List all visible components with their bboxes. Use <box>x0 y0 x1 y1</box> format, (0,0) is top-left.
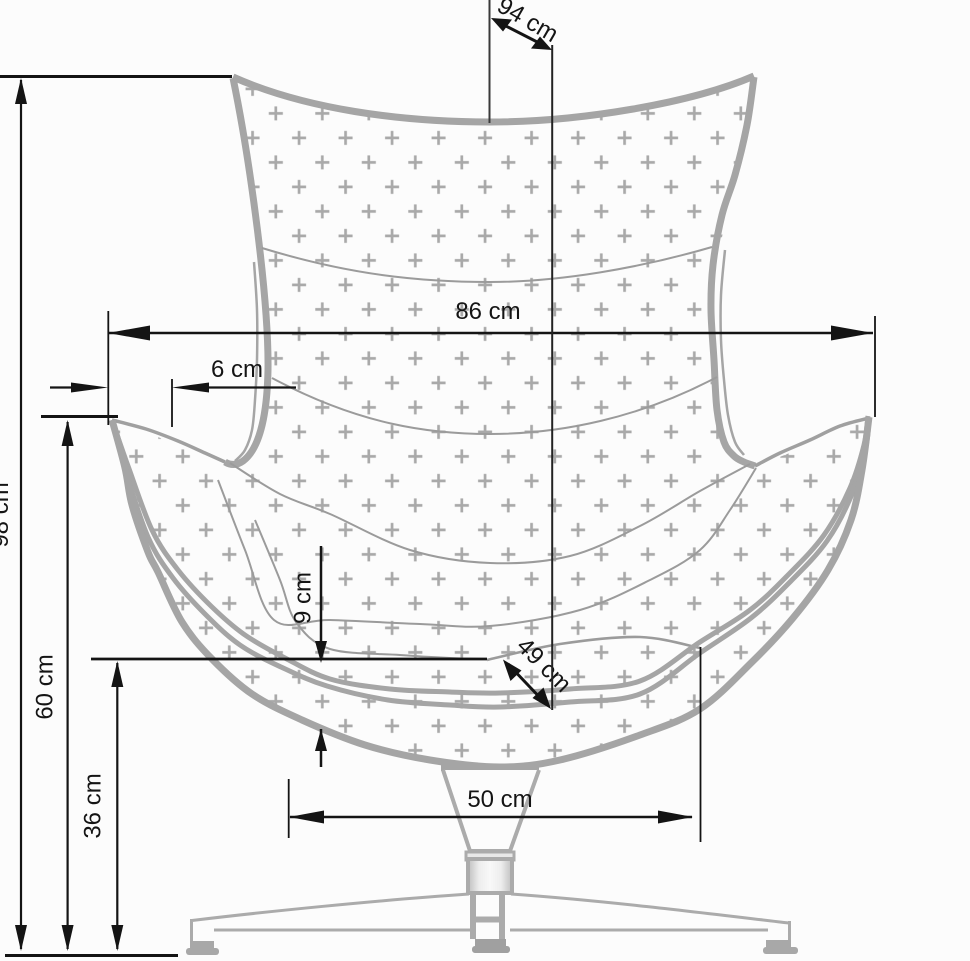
svg-text:60 cm: 60 cm <box>31 654 58 719</box>
svg-text:6 cm: 6 cm <box>211 356 263 383</box>
svg-text:86 cm: 86 cm <box>455 298 520 325</box>
svg-text:50 cm: 50 cm <box>467 786 532 813</box>
svg-text:98 cm: 98 cm <box>0 482 14 547</box>
svg-text:9 cm: 9 cm <box>289 572 316 624</box>
svg-text:36 cm: 36 cm <box>79 773 106 838</box>
